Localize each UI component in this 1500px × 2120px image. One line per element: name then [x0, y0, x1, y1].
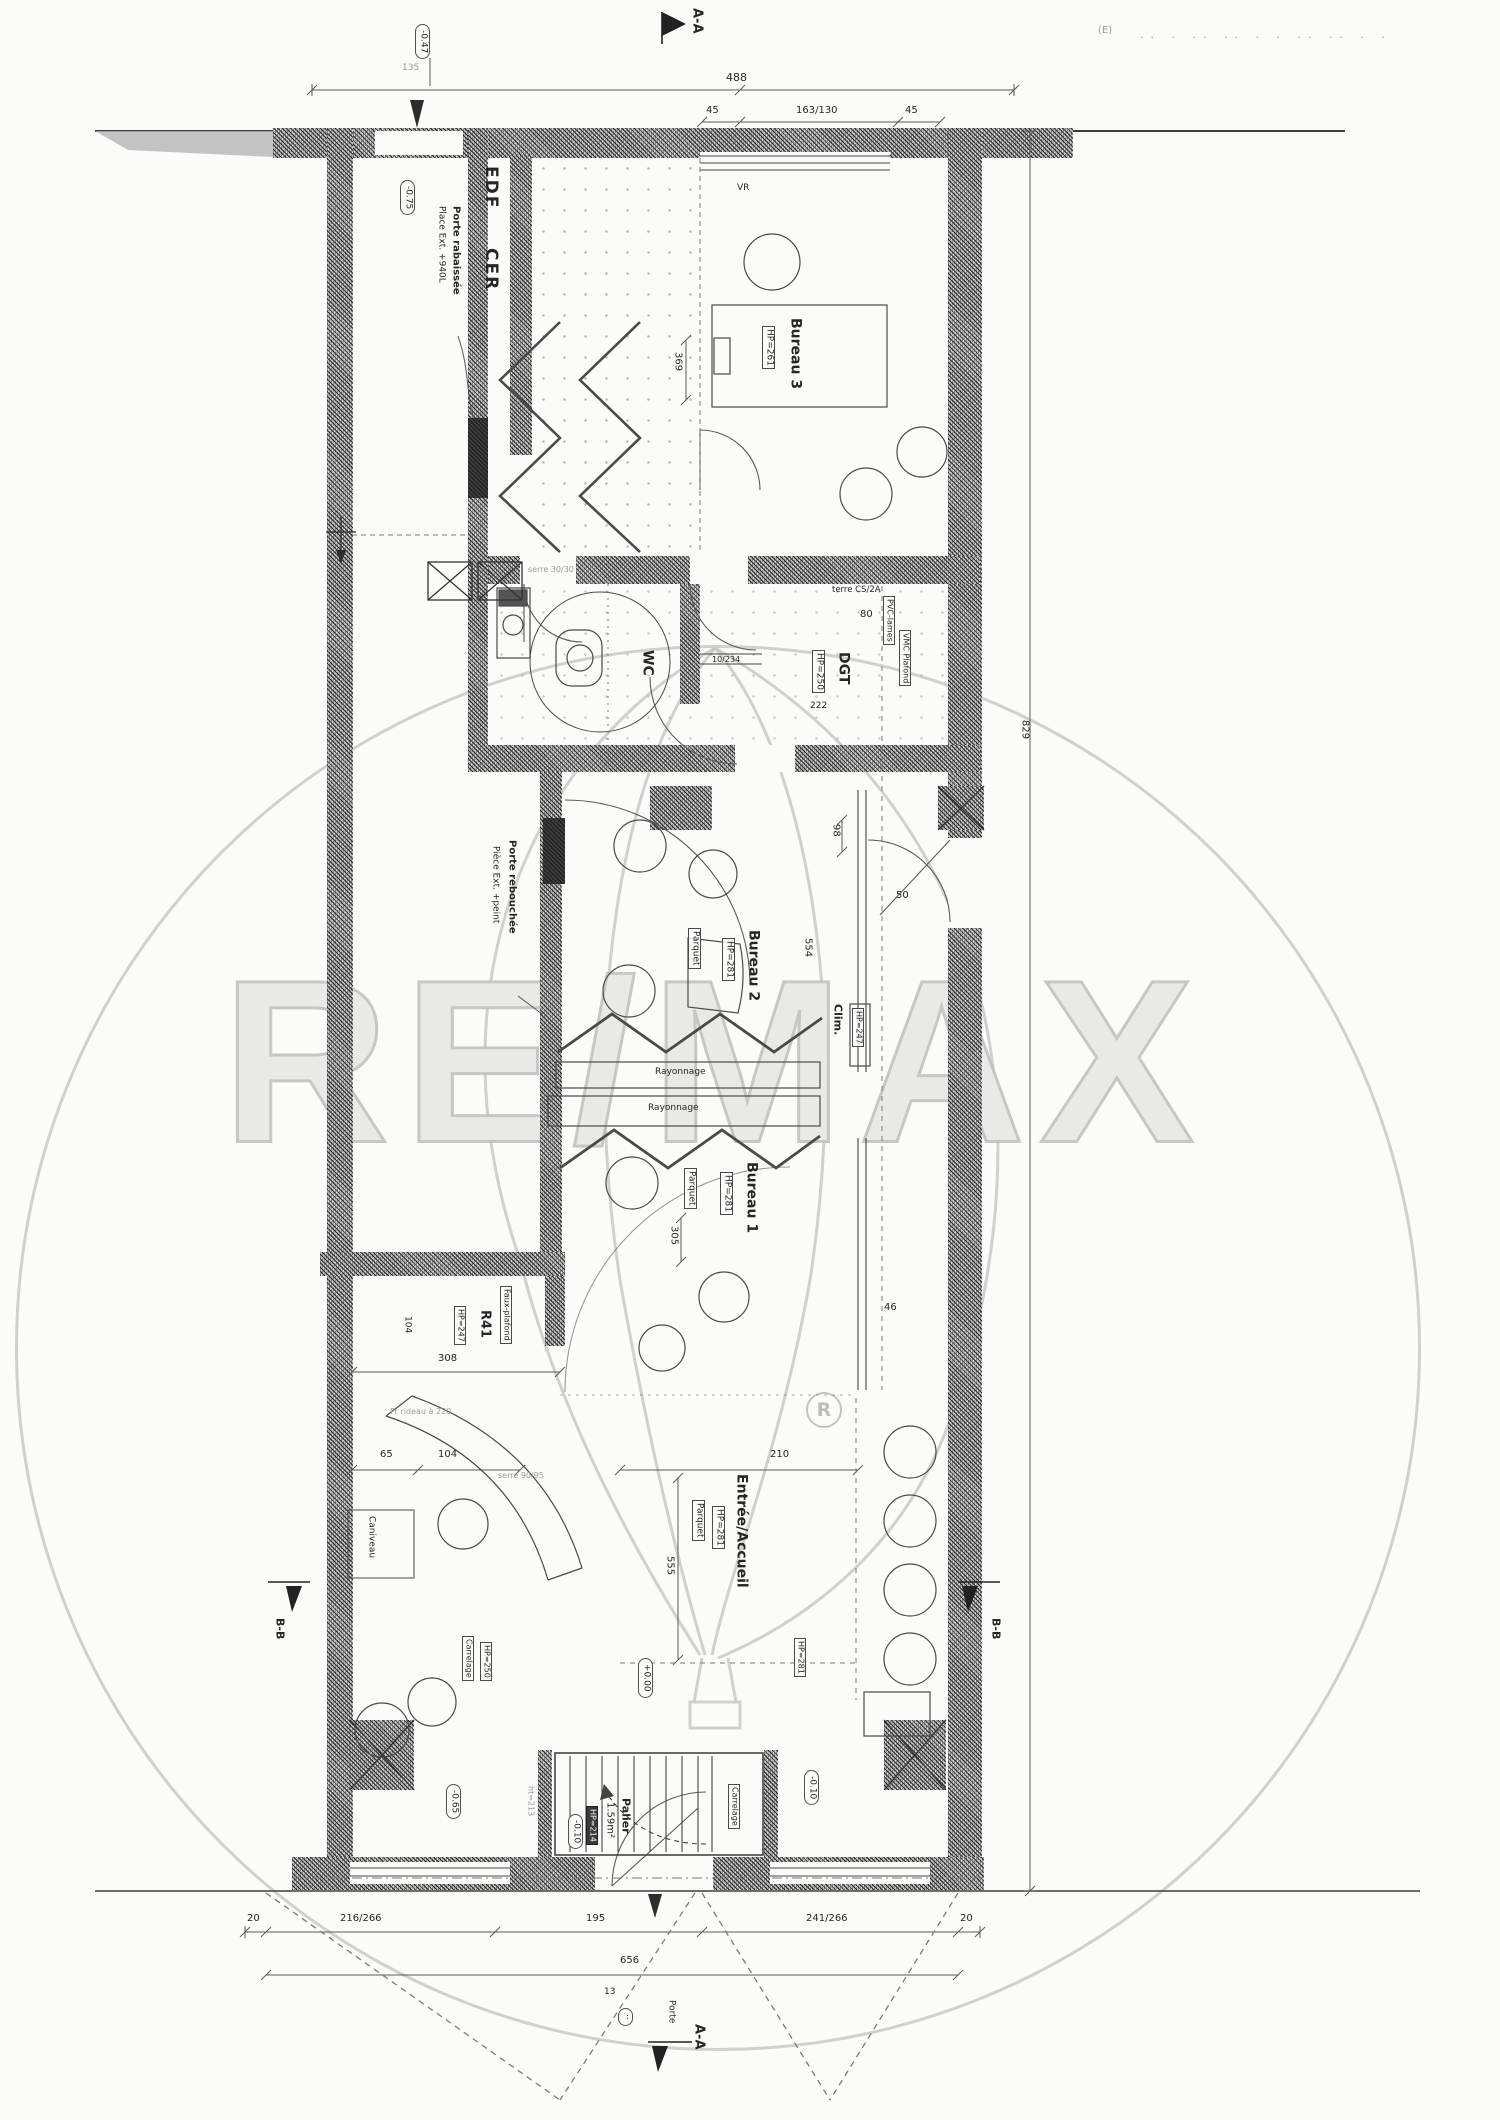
dim-554: 554: [802, 938, 813, 957]
note-porte-rabaissee-2: Place Ext. +940L: [436, 206, 445, 283]
blocked-door-mid: [543, 818, 565, 884]
section-label-bb-right: B-B: [990, 1618, 1002, 1639]
stamp-right-room-hp: HP=281: [794, 1638, 806, 1677]
stamp-entree-hp: HP=281: [712, 1506, 725, 1549]
section-label-aa-bottom: A-A: [692, 2024, 706, 2050]
top-window-opening: [700, 152, 890, 178]
stamp-r41-hp: HP=247: [454, 1306, 466, 1345]
label-rayonnage-2: Rayonnage: [648, 1104, 699, 1113]
wall-r41-top: [320, 1252, 565, 1276]
bottom-window-right: [770, 1862, 930, 1884]
wall-right: [948, 128, 982, 1890]
stamp-bureau1-hp: HP=281: [720, 1172, 733, 1215]
watermark-brand: RE/MAX: [222, 929, 1208, 1196]
top-porch-opening: [375, 131, 463, 155]
dim-ht213: ht=213: [526, 1786, 534, 1816]
dim-50: 50: [896, 891, 909, 902]
stamp-palier-floor: Carrelage: [728, 1784, 740, 1829]
room-dgt: DGT: [836, 652, 851, 684]
room-cer: CER: [481, 248, 499, 291]
dim-80: 80: [860, 610, 873, 621]
dim-104-r41: 104: [402, 1316, 411, 1333]
dim-305: 305: [668, 1226, 679, 1245]
room-wc: WC: [640, 650, 655, 676]
hall-door-opening: [735, 745, 795, 772]
room-bureau3: Bureau 3: [788, 318, 803, 389]
dim-total-width: 488: [726, 72, 747, 84]
entrance-door-opening: [595, 1857, 713, 1890]
stamp-clim-hp: HP=247: [852, 1008, 864, 1047]
note-porte-bottom: Porte: [666, 2000, 675, 2023]
level-marker: -0.65: [446, 1784, 461, 1819]
dim-369: 369: [672, 352, 683, 371]
stamp-dgt-vmc: VMC Plafond: [899, 630, 911, 686]
stair-wall-left: [538, 1750, 552, 1857]
shaft-lower-left: [350, 1720, 414, 1790]
room-clim: Clim.: [832, 1004, 844, 1035]
room-bureau1: Bureau 1: [744, 1162, 759, 1233]
stamp-bureau3-hp: HP=261: [762, 326, 775, 369]
dim-656: 656: [620, 1956, 639, 1967]
stamp-entree-floor: Parquet: [692, 1500, 705, 1541]
wall-band-mid: [468, 745, 980, 772]
stamp-hall-hp: HP=250: [480, 1642, 492, 1681]
stamp-bureau2-floor: Parquet: [688, 928, 701, 969]
label-caniveau: Caniveau: [366, 1516, 375, 1558]
room-palier: Palier: [620, 1798, 632, 1834]
section-label-bb-left: B-B: [274, 1618, 286, 1639]
dim-10-234: 10/234: [712, 656, 740, 664]
dim-98: 98: [830, 824, 841, 837]
dim-13: 13: [604, 1988, 615, 1997]
stamp-bureau2-hp: HP=281: [722, 938, 735, 981]
label-palier-area: 1.59m²: [604, 1802, 615, 1838]
dim-46: 46: [884, 1303, 897, 1314]
room-edf: EDF: [481, 166, 499, 209]
stamp-hall-floor: Carrelage: [462, 1636, 474, 1681]
room-bureau2: Bureau 2: [746, 930, 761, 1001]
dim-210: 210: [770, 1450, 789, 1461]
shaft-upper-right: [938, 786, 984, 830]
dim-195: 195: [586, 1914, 605, 1925]
dim-555: 555: [664, 1556, 675, 1575]
dim-163-130: 163/130: [796, 106, 838, 117]
dim-20-left: 20: [247, 1914, 260, 1925]
level-marker: -0.10: [568, 1814, 583, 1849]
level-marker: -0.47: [415, 24, 430, 59]
note-terre: terre CS/2A: [832, 586, 881, 595]
stamp-dgt-pvc: PVC-lames: [883, 596, 895, 645]
structural-pier: [650, 786, 712, 830]
blocked-door-upper: [468, 418, 488, 498]
stair-wall-right: [764, 1750, 778, 1857]
level-marker: -0.10: [804, 1770, 819, 1805]
dim-small: 135: [402, 64, 419, 73]
note-porte-rebouchee-2: Pièce Ext. +peint: [490, 846, 499, 923]
wall-closet-right: [510, 155, 532, 455]
top-left-wedge: [95, 131, 273, 157]
level-marker: -0.75: [400, 180, 415, 215]
wall-left: [327, 128, 353, 1890]
stamp-dgt-hp: HP=250: [812, 650, 825, 693]
note-serre-90: serre 90/95: [498, 1472, 544, 1480]
note-serre-30: serre 30/30: [528, 566, 574, 574]
note-e: (E): [1098, 26, 1112, 37]
note-porte-rebouchee: Porte rebouchée: [506, 840, 517, 934]
stamp-bureau1-floor: Parquet: [684, 1168, 697, 1209]
note-vr: VR: [737, 184, 749, 193]
dim-308: 308: [438, 1354, 457, 1365]
wall-r41-right: [545, 1276, 565, 1346]
note-rideau: Pr rideau à 220: [390, 1408, 451, 1416]
dim-216-266: 216/266: [340, 1914, 382, 1925]
label-rayonnage-1: Rayonnage: [655, 1068, 706, 1077]
room-r41: R41: [478, 1310, 492, 1338]
dim-65: 65: [380, 1450, 393, 1461]
dim-20-right: 20: [960, 1914, 973, 1925]
shaft-lower-right: [884, 1720, 946, 1790]
dim-241-266: 241/266: [806, 1914, 848, 1925]
floor-plan-scan: RE/MAX R: [0, 0, 1500, 2120]
registered-trademark-icon: R: [806, 1392, 842, 1428]
stamp-oval-bottom: ··: [618, 2008, 633, 2026]
note-porte-rabaissee: Porte rabaissée: [450, 206, 461, 295]
stamp-palier-hp: HP=214: [586, 1806, 598, 1845]
dim-222: 222: [810, 702, 827, 711]
faint-header-marks: ·· · ·· ·· · · ·· ·· · ·: [1140, 32, 1392, 44]
bottom-window-left: [350, 1862, 510, 1884]
section-label-aa-top: A-A: [690, 8, 704, 34]
dim-total-height: 829: [1019, 720, 1030, 739]
wall-wc-dgt-divider: [680, 584, 700, 704]
watermark-circle: [15, 645, 1421, 2051]
right-door-opening: [948, 838, 982, 928]
room-entree: Entrée/Accueil: [734, 1474, 749, 1588]
dgt-door-opening: [690, 556, 748, 584]
dim-104-entree: 104: [438, 1450, 457, 1461]
level-marker-zero: +0.00: [638, 1658, 653, 1698]
dim-45-left: 45: [706, 106, 719, 117]
dim-45-right: 45: [905, 106, 918, 117]
stamp-r41-note: Faux-plafond: [500, 1286, 512, 1344]
